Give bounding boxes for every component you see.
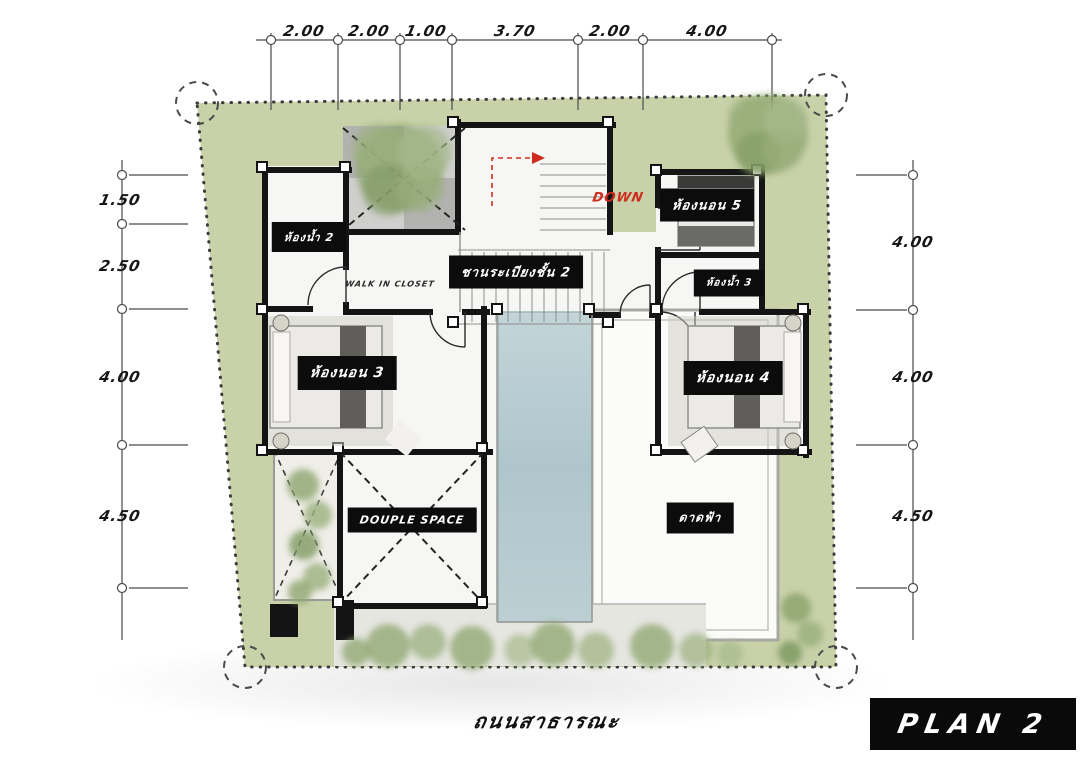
plan-badge: PLAN 2 xyxy=(870,698,1076,750)
grid-lines-right xyxy=(856,160,918,640)
stair-down-label: DOWN xyxy=(591,191,645,206)
dim-top-6: 4.00 xyxy=(685,22,730,40)
tree-icon-top-left xyxy=(352,124,452,216)
dim-right-3: 4.50 xyxy=(891,507,936,525)
floor-plan-canvas: 2.00 2.00 1.00 3.70 2.00 4.00 1.50 2.50 … xyxy=(0,0,1080,763)
room-label-bedroom4: ห้องนอน 4 xyxy=(685,362,782,394)
pool xyxy=(498,312,592,622)
room-label-bathroom2: ห้องน้ำ 2 xyxy=(273,223,345,251)
dim-left-3: 4.00 xyxy=(98,368,143,386)
dim-left-1: 1.50 xyxy=(98,191,143,209)
dim-left-4: 4.50 xyxy=(98,507,143,525)
dim-top-4: 3.70 xyxy=(493,22,538,40)
walk-in-closet-label: WALK IN CLOSET xyxy=(344,280,435,289)
room-label-bedroom3: ห้องนอน 3 xyxy=(299,357,396,389)
tree-icon-top-right xyxy=(728,94,808,176)
dim-top-3: 1.00 xyxy=(404,22,449,40)
dim-left-2: 2.50 xyxy=(98,257,143,275)
dim-right-1: 4.00 xyxy=(891,233,936,251)
room-label-double-space: DOUPLE SPACE xyxy=(349,509,476,532)
dim-top-5: 2.00 xyxy=(588,22,633,40)
dim-right-2: 4.00 xyxy=(891,368,936,386)
dim-top-2: 2.00 xyxy=(347,22,392,40)
room-label-balcony: ชานระเบียงชั้น 2 xyxy=(450,257,582,288)
room-label-bathroom3: ห้องน้ำ 3 xyxy=(695,271,763,296)
dim-top-1: 2.00 xyxy=(282,22,327,40)
grid-lines-left xyxy=(118,160,189,640)
room-label-roof-deck: ดาดฟ้า xyxy=(668,504,733,533)
room-label-bedroom5: ห้องนอน 5 xyxy=(661,190,753,221)
road-label: ถนนสาธารณะ xyxy=(470,705,623,737)
